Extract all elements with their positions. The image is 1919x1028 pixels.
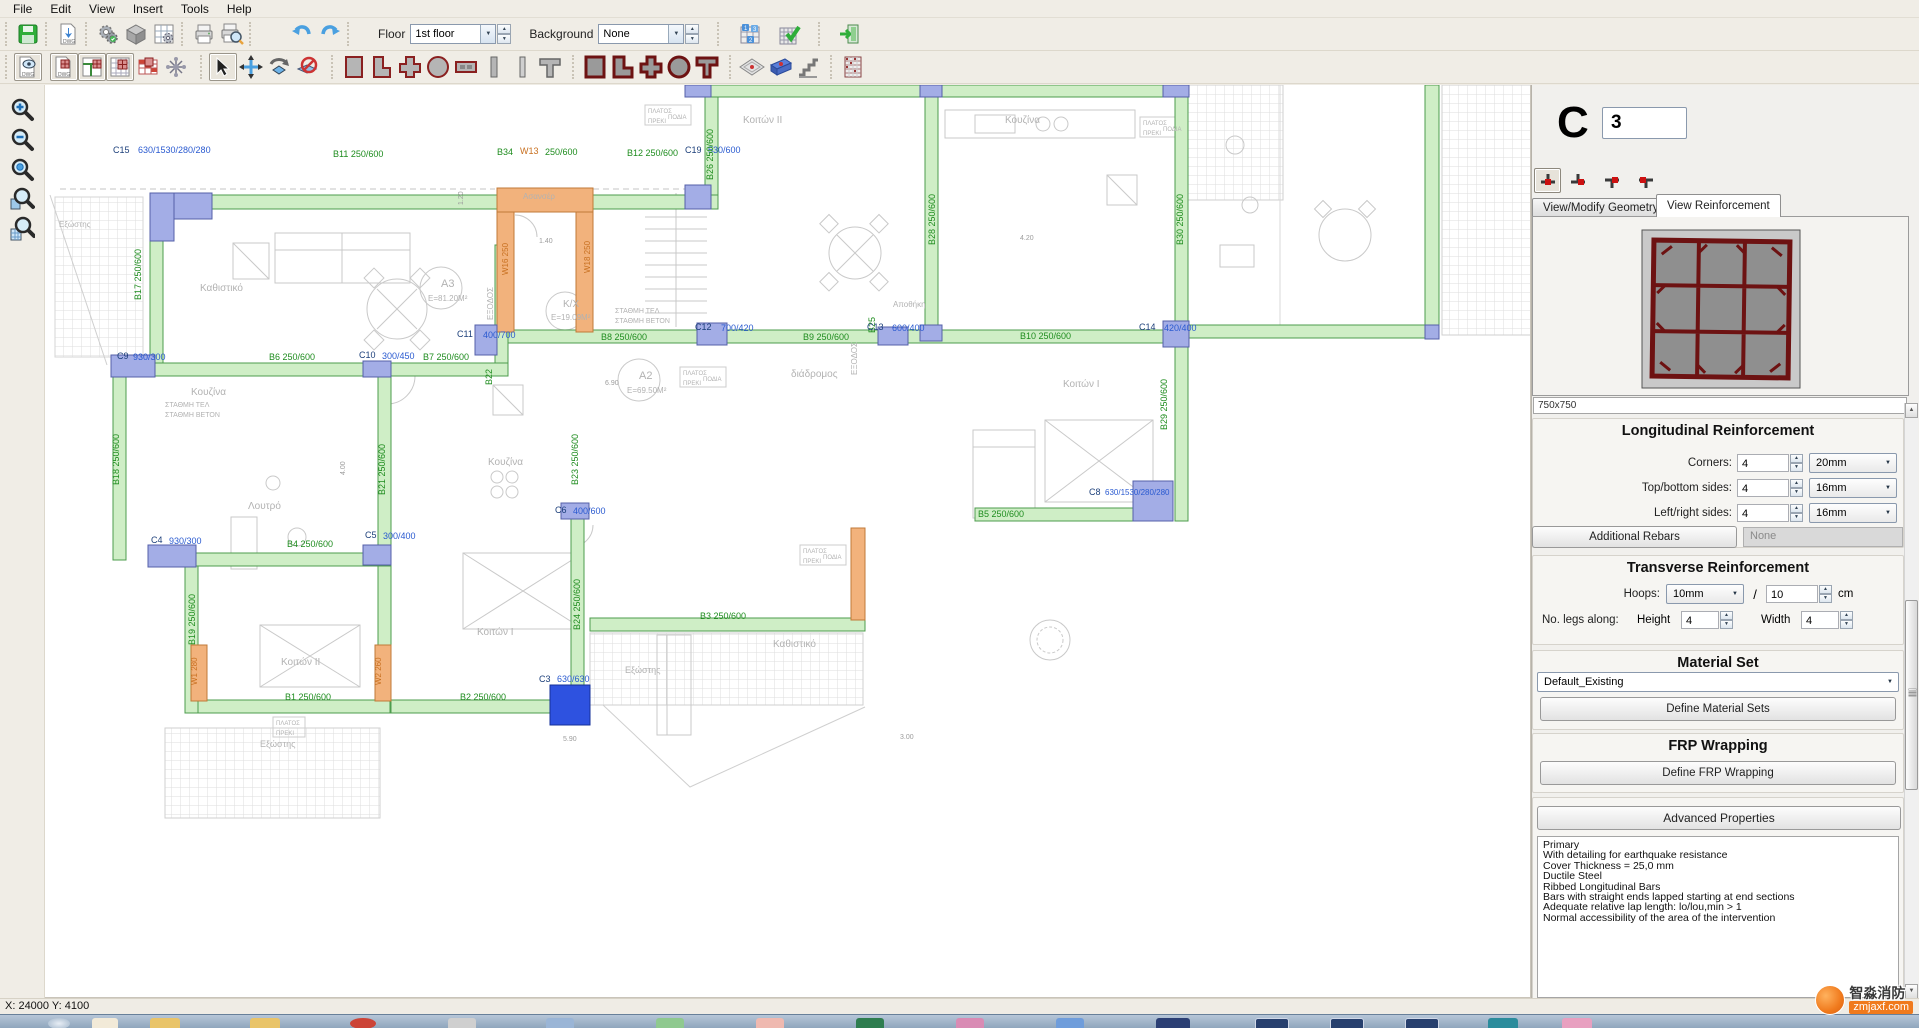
taskbar-item[interactable] bbox=[546, 1018, 574, 1028]
grid-settings-button[interactable] bbox=[150, 20, 178, 48]
zoom-in-button[interactable] bbox=[8, 95, 36, 123]
toolbar-grip bbox=[572, 55, 576, 79]
chevron-down-icon: ▼ bbox=[1880, 460, 1896, 466]
filled-l-column-button[interactable] bbox=[609, 53, 637, 81]
plan-label: B9 250/600 bbox=[803, 332, 849, 342]
plan-label: A3 bbox=[441, 278, 454, 290]
plan-label: ΠΡΕΚΙ bbox=[683, 381, 701, 387]
define-material-sets-button[interactable]: Define Material Sets bbox=[1540, 697, 1896, 721]
bar-column-button[interactable] bbox=[480, 53, 508, 81]
spacing-unit: cm bbox=[1838, 588, 1853, 600]
plan-label: A2 bbox=[639, 370, 652, 382]
plan-label: C19 bbox=[685, 145, 702, 155]
hoop-spacing-input[interactable] bbox=[1766, 585, 1818, 603]
plan-label: E=81.20M² bbox=[428, 294, 468, 303]
plan-label: Κουζίνα bbox=[1005, 114, 1040, 126]
axes-button[interactable] bbox=[162, 53, 190, 81]
plan-label: 1.20 bbox=[458, 191, 465, 205]
taskbar-item[interactable] bbox=[1255, 1018, 1289, 1028]
watermark-name: 智淼消防 bbox=[1849, 986, 1913, 1000]
toolbar-grip bbox=[331, 55, 335, 79]
plan-label: ΣΤΑΘΜΗ ΒΕΤΟΝ bbox=[615, 318, 670, 325]
plan-label: 630/630 bbox=[557, 674, 590, 684]
legs-width-input[interactable] bbox=[1801, 611, 1839, 629]
plan-label: ΠΟΔΙΑ bbox=[703, 377, 722, 383]
topbottom-count-input[interactable] bbox=[1737, 479, 1789, 497]
plan-label: W18 250 bbox=[583, 240, 592, 273]
plan-label: ΣΤΑΘΜΗ ΤΕΛ bbox=[165, 402, 210, 409]
plan-label: ΠΡΕΚΙ bbox=[276, 731, 294, 737]
tab-view-reinforcement[interactable]: View Reinforcement bbox=[1656, 194, 1781, 217]
plan-label: B23 250/600 bbox=[570, 434, 580, 485]
toolbar-grip bbox=[45, 22, 49, 46]
plan-label: 700/420 bbox=[721, 323, 754, 333]
plan-label: C6 bbox=[555, 505, 567, 515]
plan-label: B3 250/600 bbox=[700, 611, 746, 621]
plan-label: Εξώστης bbox=[260, 739, 296, 749]
plan-label: 300/450 bbox=[382, 351, 415, 361]
chevron-down-icon: ▼ bbox=[1880, 485, 1896, 491]
plan-label: B10 250/600 bbox=[1020, 331, 1071, 341]
menu-file[interactable]: File bbox=[4, 1, 41, 17]
legs-width-spinner[interactable]: ▲▼ bbox=[1840, 611, 1853, 629]
reinforcement-section-image bbox=[1641, 229, 1801, 389]
panel-tabs: View/Modify Geometry View Reinforcement bbox=[1532, 194, 1919, 217]
filled-tee-column-button[interactable] bbox=[693, 53, 721, 81]
taskbar-item[interactable] bbox=[1405, 1018, 1439, 1028]
floor-combobox[interactable]: 1st floor ▼ bbox=[410, 24, 496, 44]
plan-label: Ασανσέρ bbox=[523, 192, 555, 201]
toolbar-grip bbox=[729, 55, 733, 79]
column-rect-button[interactable] bbox=[340, 53, 368, 81]
taskbar-item[interactable] bbox=[1562, 1018, 1592, 1028]
scrollbar-thumb[interactable] bbox=[1905, 600, 1918, 790]
storey-manager-button[interactable]: 132 bbox=[736, 20, 764, 48]
topbottom-diameter-dropdown[interactable]: 16mm▼ bbox=[1809, 478, 1897, 498]
position-top-left-button[interactable] bbox=[1632, 168, 1659, 193]
corners-count-input[interactable] bbox=[1737, 454, 1789, 472]
scroll-up-icon[interactable]: ▲ bbox=[1905, 403, 1918, 418]
plan-label: B34 bbox=[497, 147, 513, 157]
plan-label: C5 bbox=[365, 530, 377, 540]
menu-bar: File Edit View Insert Tools Help bbox=[0, 0, 1919, 18]
plan-label: ΠΟΔΙΑ bbox=[823, 555, 842, 561]
plan-view-button[interactable] bbox=[78, 53, 106, 81]
cursor-coordinates: X: 24000 Y: 4100 bbox=[5, 1000, 89, 1012]
floor-spinner[interactable]: ▲▼ bbox=[497, 24, 511, 44]
dwg-view-button[interactable]: DWG bbox=[14, 53, 42, 81]
menu-tools[interactable]: Tools bbox=[172, 1, 218, 17]
plan-label: Καθιστικό bbox=[200, 282, 243, 294]
leftright-label: Left/right sides: bbox=[1532, 507, 1732, 519]
taskbar-item[interactable] bbox=[656, 1018, 684, 1028]
main-toolbar: DWG Floor 1st floor ▼ ▲▼ Background None… bbox=[0, 18, 1919, 51]
plan-label: K/X bbox=[563, 299, 579, 310]
column-number-input[interactable] bbox=[1602, 107, 1687, 139]
plan-label: Κουζίνα bbox=[191, 386, 226, 398]
column-tee-button[interactable] bbox=[536, 53, 564, 81]
plan-label: ΣΤΑΘΜΗ ΤΕΛ bbox=[615, 308, 660, 315]
taskbar-item[interactable] bbox=[956, 1018, 984, 1028]
taskbar-item[interactable] bbox=[150, 1018, 180, 1028]
plan-label: B7 250/600 bbox=[423, 352, 469, 362]
toolbar-grip bbox=[85, 22, 89, 46]
column-l-button[interactable] bbox=[368, 53, 396, 81]
taskbar-item[interactable] bbox=[756, 1018, 784, 1028]
cancel-tool-button[interactable] bbox=[293, 53, 321, 81]
undo-button[interactable] bbox=[288, 20, 316, 48]
column-circle-button[interactable] bbox=[424, 53, 452, 81]
plan-label: C4 bbox=[151, 535, 163, 545]
solid-view-button[interactable] bbox=[122, 20, 150, 48]
plan-label: B26 250/600 bbox=[705, 129, 715, 180]
plan-label: 420/400 bbox=[1164, 323, 1197, 333]
corners-diameter-dropdown[interactable]: 20mm▼ bbox=[1809, 453, 1897, 473]
plan-label: 300/400 bbox=[383, 531, 416, 541]
plan-label: Λουτρό bbox=[248, 500, 281, 512]
menu-view[interactable]: View bbox=[80, 1, 124, 17]
plan-label: B1 250/600 bbox=[285, 692, 331, 702]
plan-label: E=69.50M² bbox=[627, 386, 667, 395]
plan-label: Κοιτών I bbox=[477, 626, 514, 638]
plan-label: E=19.09M² bbox=[551, 313, 591, 322]
plan-label: C9 bbox=[117, 351, 129, 361]
floor-label: Floor bbox=[378, 27, 405, 41]
plan-label: Εξώστης bbox=[59, 220, 91, 229]
menu-insert[interactable]: Insert bbox=[124, 1, 172, 17]
background-spinner[interactable]: ▲▼ bbox=[685, 24, 699, 44]
panel-scrollbar[interactable]: ▲ ▼ bbox=[1904, 403, 1918, 999]
background-value: None bbox=[603, 28, 668, 40]
additional-rebars-button[interactable]: Additional Rebars bbox=[1532, 526, 1737, 548]
plan-label: W1 280 bbox=[190, 657, 199, 685]
plan-label: ΠΟΔΙΑ bbox=[668, 115, 687, 121]
stairs-button[interactable] bbox=[794, 53, 822, 81]
section-size-field[interactable]: 750x750 bbox=[1533, 397, 1907, 414]
settings-button[interactable] bbox=[94, 20, 122, 48]
plan-grid-button[interactable] bbox=[106, 53, 134, 81]
plan-label: C3 bbox=[539, 674, 551, 684]
wall-section-button[interactable] bbox=[452, 53, 480, 81]
plan-label: Αποθήκη bbox=[893, 300, 926, 309]
chevron-down-icon: ▼ bbox=[1880, 510, 1896, 516]
topbottom-spinner[interactable]: ▲▼ bbox=[1790, 479, 1803, 497]
plan-label: ΠΟΔΙΑ bbox=[1163, 127, 1182, 133]
zoom-previous-button[interactable] bbox=[8, 155, 36, 183]
taskbar-item[interactable] bbox=[856, 1018, 884, 1028]
plan-label: 3.00 bbox=[900, 734, 914, 741]
corners-label: Corners: bbox=[1532, 457, 1732, 469]
status-bar: X: 24000 Y: 4100 bbox=[0, 998, 1919, 1014]
frp-title: FRP Wrapping bbox=[1533, 738, 1903, 754]
toolbar-grip bbox=[347, 22, 351, 46]
toolbar-grip bbox=[830, 55, 834, 79]
plan-label: 250/600 bbox=[545, 147, 578, 157]
toolbar-grip bbox=[717, 22, 721, 46]
leftright-spinner[interactable]: ▲▼ bbox=[1790, 504, 1803, 522]
drawing-toolbar: DWG DWG bbox=[0, 51, 1919, 84]
rotate-tool-button[interactable] bbox=[265, 53, 293, 81]
dwg-columns-button[interactable]: DWG bbox=[50, 53, 78, 81]
exit-button[interactable] bbox=[835, 20, 863, 48]
plan-label: B19 250/600 bbox=[187, 594, 197, 645]
start-button[interactable] bbox=[48, 1018, 70, 1028]
selected-column-c3[interactable] bbox=[550, 685, 590, 725]
plan-label: ΠΡΕΚΙ bbox=[803, 559, 821, 565]
taskbar-item[interactable] bbox=[250, 1018, 280, 1028]
menu-help[interactable]: Help bbox=[218, 1, 261, 17]
toolbar-grip bbox=[181, 22, 185, 46]
zoom-toolbar bbox=[0, 85, 45, 998]
position-top-right-button[interactable] bbox=[1598, 168, 1625, 193]
export-dwg-button[interactable]: DWG bbox=[54, 20, 82, 48]
height-label: Height bbox=[1637, 614, 1681, 626]
toolbar-grip bbox=[818, 22, 822, 46]
floor-plan: C15630/1530/280/280B11 250/600B34W13250/… bbox=[45, 85, 1531, 998]
select-tool-button[interactable] bbox=[209, 53, 237, 81]
plan-label: B21 250/600 bbox=[377, 444, 387, 495]
plan-label: Κοιτών II bbox=[743, 114, 782, 126]
section-preview bbox=[1532, 216, 1909, 396]
background-combobox[interactable]: None ▼ bbox=[598, 24, 684, 44]
legs-height-input[interactable] bbox=[1681, 611, 1719, 629]
plan-label: 600/400 bbox=[892, 323, 925, 333]
watermark-logo-icon bbox=[1815, 985, 1845, 1015]
slash-separator: / bbox=[1744, 587, 1766, 602]
move-tool-button[interactable] bbox=[237, 53, 265, 81]
plan-label: B2 250/600 bbox=[460, 692, 506, 702]
plan-label: C12 bbox=[695, 322, 712, 332]
apply-check-button[interactable] bbox=[776, 20, 804, 48]
plan-label: ΠΡΕΚΙ bbox=[648, 119, 666, 125]
corners-diameter-value: 20mm bbox=[1816, 457, 1847, 469]
hoops-label: Hoops: bbox=[1532, 588, 1660, 600]
plan-label: 4.20 bbox=[1020, 235, 1034, 242]
redo-button[interactable] bbox=[316, 20, 344, 48]
chevron-down-icon[interactable]: ▼ bbox=[480, 25, 495, 43]
plan-label: B30 250/600 bbox=[1175, 194, 1185, 245]
longitudinal-title: Longitudinal Reinforcement bbox=[1533, 423, 1903, 439]
plan-label: C10 bbox=[359, 350, 376, 360]
material-set-dropdown[interactable]: Default_Existing▼ bbox=[1537, 672, 1899, 692]
floor-value: 1st floor bbox=[415, 28, 480, 40]
drawing-canvas[interactable]: C15630/1530/280/280B11 250/600B34W13250/… bbox=[45, 85, 1531, 998]
plan-label: ΠΡΕΚΙ bbox=[1143, 131, 1161, 137]
column-plus-button[interactable] bbox=[396, 53, 424, 81]
plan-label: Κουζίνα bbox=[488, 456, 523, 468]
chevron-down-icon: ▼ bbox=[1727, 591, 1743, 597]
taskbar-item[interactable] bbox=[1488, 1018, 1518, 1028]
chevron-down-icon: ▼ bbox=[1882, 679, 1898, 685]
plan-label: ΕΞΟΔΟΣ bbox=[486, 287, 495, 320]
legs-height-spinner[interactable]: ▲▼ bbox=[1720, 611, 1733, 629]
svg-text:DWG: DWG bbox=[58, 72, 70, 78]
plan-label: 400/700 bbox=[483, 330, 516, 340]
plan-label: διάδρομος bbox=[791, 368, 838, 380]
plan-label: 5.90 bbox=[563, 736, 577, 743]
plan-label: B17 250/600 bbox=[133, 249, 143, 300]
plan-label: 630/1530/280/280 bbox=[1105, 488, 1170, 497]
plan-label: B12 250/600 bbox=[627, 148, 678, 158]
hoop-diameter-value: 10mm bbox=[1673, 588, 1704, 600]
plan-label: B4 250/600 bbox=[287, 539, 333, 549]
define-frp-wrapping-button[interactable]: Define FRP Wrapping bbox=[1540, 761, 1896, 785]
plan-label: W13 bbox=[520, 146, 539, 156]
beam-button[interactable] bbox=[766, 53, 794, 81]
watermark: 智淼消防 zmjaxf.com bbox=[1815, 985, 1913, 1015]
plan-label: B18 250/600 bbox=[111, 434, 121, 485]
column-letter: C bbox=[1557, 101, 1589, 145]
tab-view-modify-geometry[interactable]: View/Modify Geometry bbox=[1532, 198, 1669, 217]
advanced-properties-button[interactable]: Advanced Properties bbox=[1537, 806, 1901, 830]
transverse-title: Transverse Reinforcement bbox=[1533, 560, 1903, 576]
leftright-count-input[interactable] bbox=[1737, 504, 1789, 522]
column-properties-panel: C View/Modify Geometry View Reinforcemen… bbox=[1531, 85, 1919, 998]
corners-spinner[interactable]: ▲▼ bbox=[1790, 454, 1803, 472]
toolbar-grip bbox=[5, 22, 9, 46]
zoom-window-button[interactable] bbox=[8, 185, 36, 213]
plan-label: ΣΤΑΘΜΗ ΒΕΤΟΝ bbox=[165, 412, 220, 419]
zoom-extents-button[interactable] bbox=[8, 215, 36, 243]
plan-label: Κοιτών I bbox=[1063, 378, 1100, 390]
legs-label: No. legs along: bbox=[1532, 614, 1637, 626]
save-button[interactable] bbox=[14, 20, 42, 48]
taskbar-item[interactable] bbox=[448, 1018, 476, 1028]
taskbar-item[interactable] bbox=[1156, 1018, 1190, 1028]
width-label: Width bbox=[1761, 614, 1801, 626]
filled-plus-column-button[interactable] bbox=[637, 53, 665, 81]
plan-label: B22 bbox=[484, 369, 494, 385]
plan-label: Καθιστικό bbox=[773, 638, 816, 650]
background-label: Background bbox=[529, 27, 593, 41]
plan-label: 930/300 bbox=[133, 352, 166, 362]
hoop-diameter-dropdown[interactable]: 10mm▼ bbox=[1666, 584, 1744, 604]
plan-label: C8 bbox=[1089, 487, 1101, 497]
plan-label: W16 250 bbox=[501, 242, 510, 275]
plan-label: C15 bbox=[113, 145, 130, 155]
plan-label: 1.40 bbox=[539, 238, 553, 245]
material-title: Material Set bbox=[1533, 655, 1903, 671]
plan-label: Εξώστης bbox=[625, 665, 661, 675]
toolbar-grip bbox=[200, 55, 204, 79]
plan-label: ΕΞΟΔΟΣ bbox=[850, 342, 859, 375]
plan-label: 4.00 bbox=[340, 461, 347, 475]
position-bottom-right-button[interactable] bbox=[1564, 168, 1591, 193]
plan-label: C14 bbox=[1139, 322, 1156, 332]
svg-text:DWG: DWG bbox=[22, 72, 34, 78]
additional-rebars-value: None bbox=[1743, 527, 1903, 547]
print-button[interactable] bbox=[190, 20, 218, 48]
zoom-out-button[interactable] bbox=[8, 125, 36, 153]
taskbar-item[interactable] bbox=[1056, 1018, 1084, 1028]
plan-label: B29 250/600 bbox=[1159, 379, 1169, 430]
taskbar-item[interactable] bbox=[350, 1018, 376, 1028]
plan-label: B5 250/600 bbox=[978, 509, 1024, 519]
toolbar-grip bbox=[249, 22, 253, 46]
slab-button[interactable] bbox=[738, 53, 766, 81]
menu-edit[interactable]: Edit bbox=[41, 1, 80, 17]
advanced-properties-text: Primary With detailing for earthquake re… bbox=[1537, 836, 1899, 998]
plan-label: 6.90 bbox=[605, 380, 619, 387]
plan-label: W2 260 bbox=[374, 657, 383, 685]
columns-red-button[interactable] bbox=[134, 53, 162, 81]
plan-label: 400/600 bbox=[573, 506, 606, 516]
chevron-down-icon[interactable]: ▼ bbox=[668, 25, 683, 43]
plan-label: Κοιτών II bbox=[281, 656, 320, 668]
topbottom-diameter-value: 16mm bbox=[1816, 482, 1847, 494]
filled-circle-column-button[interactable] bbox=[665, 53, 693, 81]
plan-label: B8 250/600 bbox=[601, 332, 647, 342]
position-bottom-left-button[interactable] bbox=[1534, 168, 1561, 193]
building-button[interactable] bbox=[839, 53, 867, 81]
material-set-value: Default_Existing bbox=[1544, 676, 1624, 688]
print-preview-button[interactable] bbox=[218, 20, 246, 48]
bar2-column-button[interactable] bbox=[508, 53, 536, 81]
plan-label: C13 bbox=[867, 322, 884, 332]
taskbar-item[interactable] bbox=[92, 1018, 118, 1028]
hoop-spacing-spinner[interactable]: ▲▼ bbox=[1819, 585, 1832, 603]
plan-label: B11 250/600 bbox=[333, 149, 383, 159]
watermark-site: zmjaxf.com bbox=[1849, 1001, 1913, 1014]
plan-label: 930/300 bbox=[169, 536, 202, 546]
topbottom-label: Top/bottom sides: bbox=[1532, 482, 1732, 494]
plan-label: ΠΛΑΤΟΣ bbox=[276, 721, 300, 727]
windows-taskbar[interactable] bbox=[0, 1014, 1919, 1028]
filled-rect-column-button[interactable] bbox=[581, 53, 609, 81]
advanced-section: Advanced Properties Primary With detaili… bbox=[1532, 797, 1904, 1005]
plan-label: C11 bbox=[457, 329, 473, 339]
leftright-diameter-value: 16mm bbox=[1816, 507, 1847, 519]
taskbar-item[interactable] bbox=[1330, 1018, 1364, 1028]
svg-text:DWG: DWG bbox=[63, 39, 75, 45]
plan-label: B28 250/600 bbox=[927, 194, 937, 245]
plan-label: B24 250/600 bbox=[572, 579, 582, 630]
plan-label: B6 250/600 bbox=[269, 352, 315, 362]
plan-label: 630/1530/280/280 bbox=[138, 145, 211, 155]
toolbar-grip bbox=[5, 55, 9, 79]
leftright-diameter-dropdown[interactable]: 16mm▼ bbox=[1809, 503, 1897, 523]
